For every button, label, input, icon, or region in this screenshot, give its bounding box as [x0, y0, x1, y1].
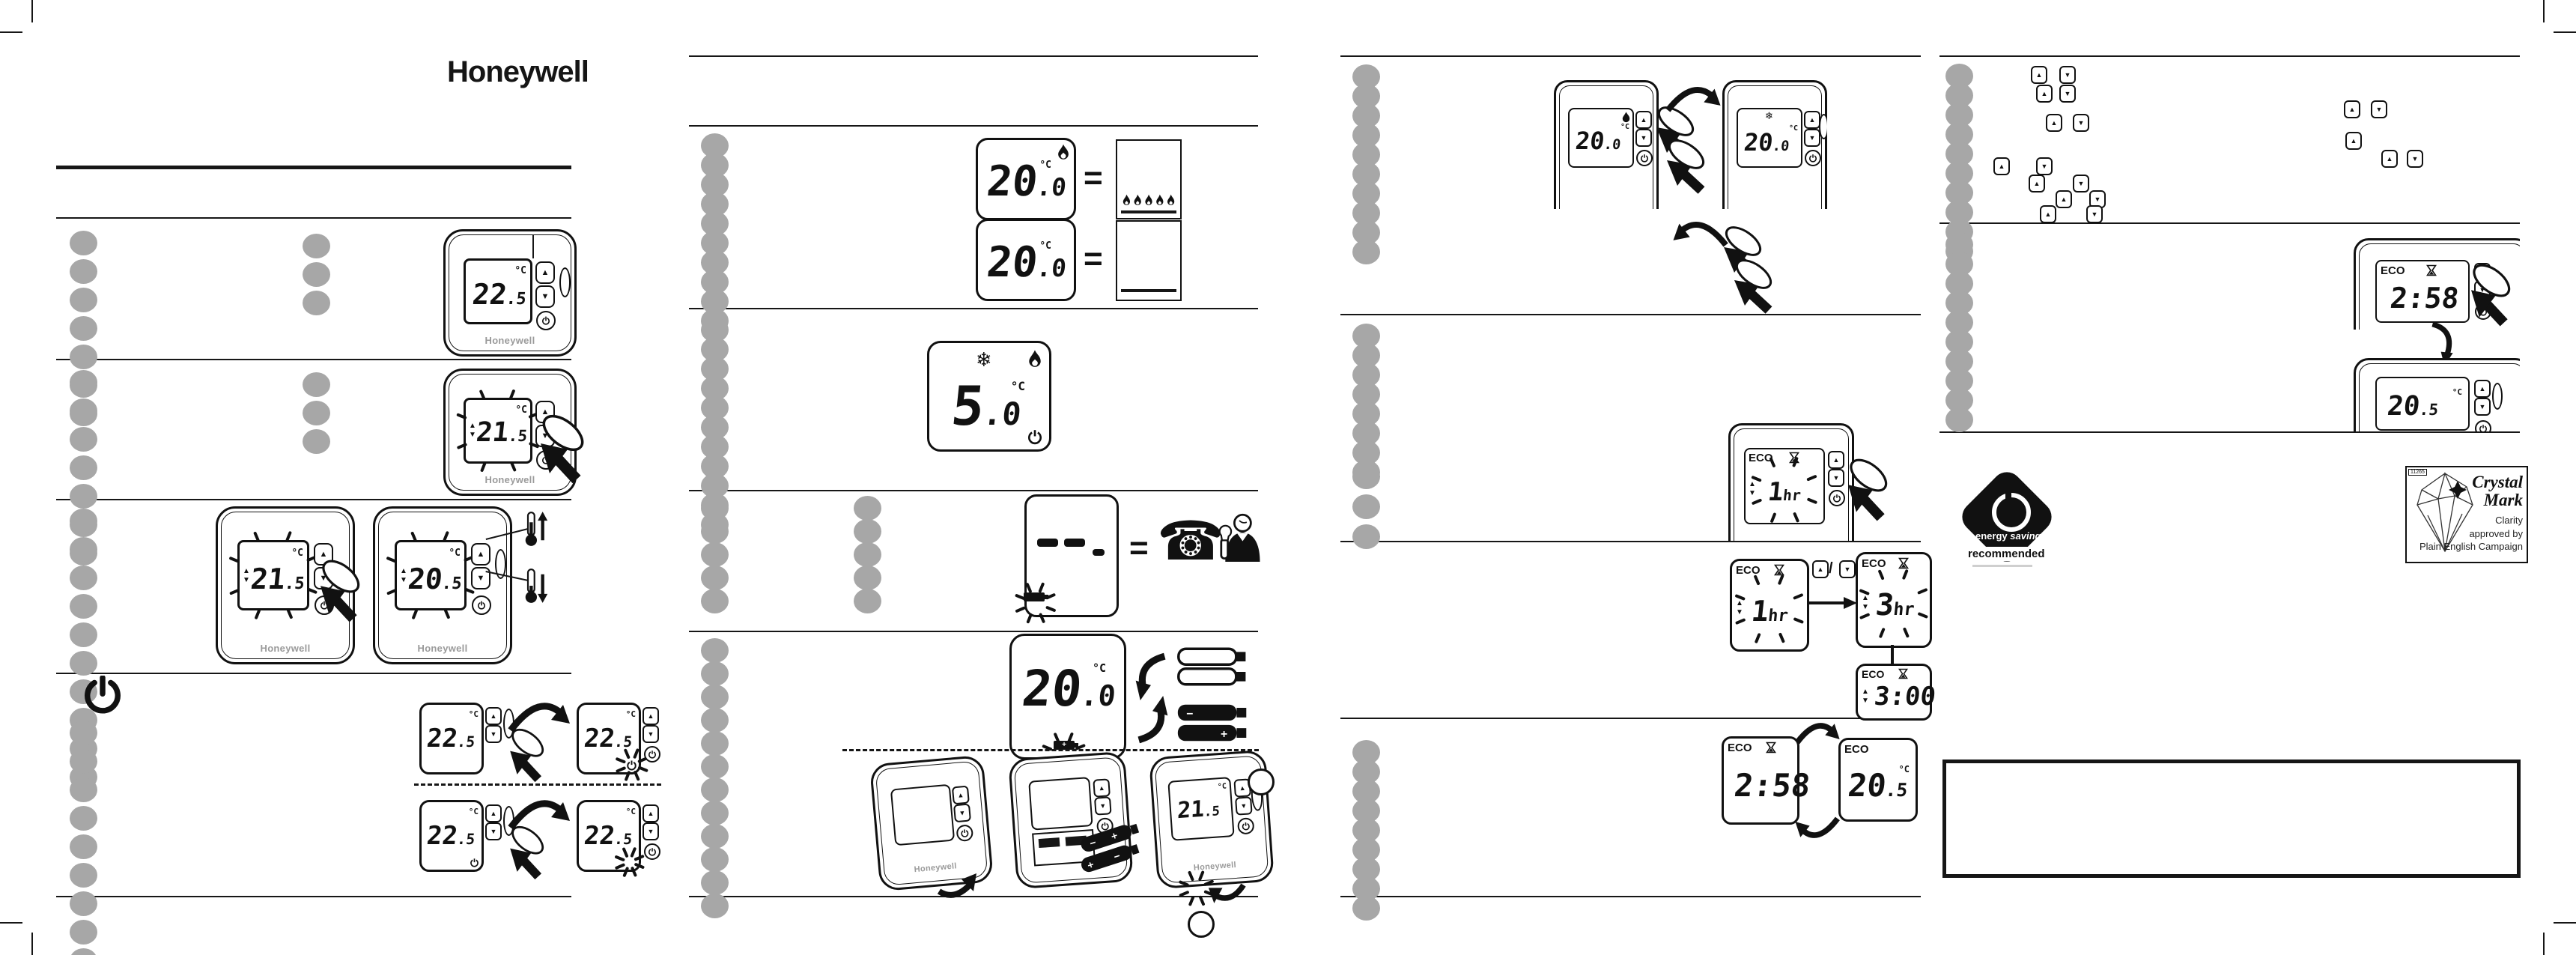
step-callout-circle: [1188, 911, 1215, 938]
up-button-icon: ▲: [1993, 157, 2010, 175]
redacted-text-line: [70, 721, 97, 745]
redacted-text-line: [70, 370, 97, 395]
lcd-on-flash: 22.5 °C: [577, 800, 641, 872]
down-button-icon: ▼: [953, 803, 971, 822]
toggle-arrow-top-icon: [1794, 718, 1841, 748]
down-button-icon: ▼: [2086, 205, 2103, 223]
redacted-text-line: [1352, 494, 1380, 519]
redacted-text-line: [1945, 407, 1973, 432]
finger-press-icon: [497, 721, 562, 785]
lcd-heating-on: 20.0 °C: [976, 138, 1076, 220]
redacted-text-line: [701, 847, 729, 872]
brand-logo: Honeywell: [447, 55, 589, 89]
down-button-icon: ▼: [2073, 114, 2089, 132]
up-button-icon: ▲: [471, 543, 490, 566]
swap-arrows-icon: [1132, 649, 1171, 748]
redacted-text-line: [70, 891, 97, 916]
up-button-icon: ▲: [2344, 100, 2360, 118]
redacted-text-line: [701, 589, 729, 613]
down-button-icon: ▼: [2474, 398, 2491, 416]
batteries-empty-icon: [1176, 646, 1251, 688]
redacted-text-line: [701, 566, 729, 590]
power-glyph: [626, 760, 637, 771]
redacted-text-line: [854, 542, 881, 567]
equals-sign: =: [1084, 162, 1103, 195]
up-button-icon: ▲: [2474, 380, 2491, 398]
redacted-text-line: [70, 259, 97, 284]
redacted-text-line: [303, 234, 330, 258]
redacted-text-line: [70, 948, 97, 955]
curved-arrow-icon: [1664, 81, 1724, 117]
redacted-paragraph: [854, 496, 881, 608]
up-button-icon: ▲: [2056, 190, 2072, 208]
down-button-icon: ▼: [1235, 796, 1253, 815]
thermometer-down-icon: [524, 568, 550, 604]
crystal-mark-logo: 11265 CrystalMark Clarity approved by Pl…: [2405, 466, 2528, 563]
flame-icon: [1622, 112, 1630, 123]
power-button-icon: [644, 843, 660, 860]
row-divider: [414, 783, 661, 786]
crop-mark: [2554, 922, 2576, 924]
power-button-icon: [472, 595, 491, 615]
up-button-icon: ▲: [2381, 150, 2398, 168]
redacted-text-line: [854, 566, 881, 590]
redacted-paragraph: [1352, 64, 1380, 255]
redacted-text-line: [701, 519, 729, 544]
redacted-text-line: [70, 920, 97, 945]
redacted-text-line: [701, 894, 729, 918]
up-button-icon: ▲: [643, 804, 659, 822]
lcd-standby-flash: 22.5 °C: [577, 703, 641, 774]
redacted-paragraph: [701, 638, 729, 913]
energy-saving-logo: energy saving recommended: [1956, 476, 2061, 577]
flame-icon: [1028, 349, 1042, 369]
up-button-icon: ▲: [1812, 560, 1829, 578]
redacted-text-line: [701, 777, 729, 802]
redacted-text-line: [701, 685, 729, 709]
redacted-text-line: [1352, 464, 1380, 489]
thermostat-front-illustration: 22.5 °C ▲ ▼ Honeywell: [443, 229, 577, 357]
batteries-inserting-icon: −+ +−: [1069, 816, 1152, 876]
redacted-text-line: [70, 484, 97, 509]
redacted-text-line: [303, 262, 330, 287]
flame-icon: [1057, 144, 1069, 160]
redacted-text-line: [701, 661, 729, 686]
up-button-icon: ▲: [2036, 85, 2053, 103]
engineer-icon: [1215, 512, 1264, 578]
finger-press-icon: [2456, 255, 2531, 330]
finger-press-icon: [1833, 449, 1908, 524]
equals-sign: =: [1084, 243, 1103, 276]
lcd-eco-temp: ECO 20.5 °C: [1838, 738, 1918, 822]
lcd-on-state: 22.5 °C: [419, 703, 484, 774]
up-button-icon: ▲: [2040, 205, 2056, 223]
redacted-text-line: [70, 594, 97, 619]
down-button-icon: ▼: [2371, 100, 2387, 118]
svg-text:+: +: [1221, 728, 1227, 741]
hourglass-icon: [1766, 742, 1776, 754]
redacted-text-line: [70, 231, 97, 255]
redacted-text-line: [70, 566, 97, 590]
crop-mark: [31, 0, 33, 22]
note-box: [1942, 760, 2521, 878]
redacted-text-line: [701, 824, 729, 849]
thermostat-eco-cancelled: 20.5 °C ▲ ▼: [2354, 358, 2520, 431]
celsius-unit: °C: [514, 265, 526, 276]
redacted-bullet: [1352, 464, 1380, 489]
redacted-bullet: [1352, 494, 1380, 519]
lcd-battery-fail: [1024, 494, 1119, 617]
redacted-text-line: [1352, 524, 1380, 549]
row-divider: [842, 749, 1259, 751]
redacted-text-line: [701, 708, 729, 733]
leaflet-page: Honeywell 22.5 °C ▲ ▼ Honeywell ▲▼ 21.5 …: [0, 0, 2576, 955]
redacted-text-line: [303, 372, 330, 397]
snowflake-icon: ❄: [976, 349, 992, 372]
close-arrow-icon: [1207, 876, 1249, 906]
lcd-eco-countdown: ECO 2:58: [1722, 736, 1799, 825]
redacted-text-line: [854, 496, 881, 521]
hourglass-icon: [1898, 557, 1909, 569]
up-button-icon: ▲: [1804, 111, 1820, 129]
power-icon: [82, 676, 123, 716]
redacted-text-line: [70, 806, 97, 831]
finger-press-icon: [306, 551, 380, 625]
power-button-icon: [644, 746, 660, 763]
crop-mark: [2543, 933, 2545, 955]
redacted-paragraph: [303, 372, 330, 454]
redacted-text-line: [701, 754, 729, 779]
thermometer-up-icon: [524, 511, 550, 547]
up-button-icon: ▲: [2029, 175, 2045, 192]
down-button-icon: ▼: [2036, 157, 2053, 175]
batteries-full-icon: −+: [1176, 701, 1251, 745]
open-arrow-icon: [935, 869, 979, 900]
two-finger-press-icon: [1700, 225, 1790, 315]
redacted-text-line: [70, 455, 97, 480]
lcd-standby-state: 22.5 °C: [419, 800, 484, 872]
redacted-paragraph: [70, 721, 97, 955]
crop-mark: [31, 933, 33, 955]
power-button-icon: [1237, 817, 1254, 834]
battery-flash-icon: [1024, 592, 1045, 601]
lcd-heating-off: 20.0 °C: [976, 219, 1076, 301]
redacted-text-line: [701, 731, 729, 756]
power-button-icon: [2475, 420, 2491, 431]
power-glyph: [1027, 428, 1043, 445]
power-glyph: [470, 858, 479, 867]
power-button-icon: [1805, 150, 1821, 166]
crop-mark: [0, 31, 22, 33]
redacted-text-line: [70, 345, 97, 369]
crop-mark: [2543, 0, 2545, 22]
redacted-text-line: [70, 651, 97, 676]
finger-press-icon: [497, 818, 562, 882]
redacted-text-line: [701, 638, 729, 663]
down-button-icon: ▼: [643, 725, 659, 743]
down-button-icon: ▼: [1839, 560, 1856, 578]
redacted-text-line: [70, 834, 97, 859]
side-grip: [559, 267, 571, 297]
redacted-paragraph: [1352, 740, 1380, 912]
crop-mark: [0, 922, 22, 924]
redacted-text-line: [70, 863, 97, 888]
down-button-icon: ▼: [2073, 175, 2089, 192]
redacted-text-line: [303, 429, 330, 454]
redacted-text-line: [701, 870, 729, 895]
redacted-text-line: [1352, 240, 1380, 264]
lcd-frost-mode: ❄ 5.0 °C: [927, 341, 1051, 452]
lcd-eco-set: ECO ▲▼ 3:00: [1856, 664, 1932, 721]
power-button-icon: [536, 311, 556, 330]
lcd-eco-3hr: ECO ▲▼ 3hr: [1856, 552, 1932, 648]
up-button-icon: ▲: [2345, 132, 2362, 150]
crop-mark: [2554, 31, 2576, 33]
redacted-text-line: [70, 509, 97, 533]
down-button-icon: ▼: [2407, 150, 2423, 168]
redacted-paragraph: [1945, 232, 1973, 423]
device-brand-label: Honeywell: [446, 335, 574, 346]
thermostat-frost-mode: ❄ 20.0 °C ▲ ▼: [1722, 80, 1827, 209]
flames-icon: [1121, 192, 1176, 209]
toggle-arrow-bottom-icon: [1794, 813, 1841, 843]
down-button-icon: ▼: [1804, 129, 1820, 147]
up-button-icon: ▲: [2031, 66, 2047, 84]
down-button-icon: ▼: [535, 285, 555, 308]
thermostat-new-setpoint-illustration: ▲▼ 20.5 °C ▲ ▼ Honeywell: [373, 506, 512, 664]
redacted-paragraph: [303, 234, 330, 315]
redacted-paragraph: [701, 133, 729, 324]
up-button-icon: ▲: [535, 261, 555, 284]
redacted-text-line: [1352, 896, 1380, 921]
redacted-text-line: [70, 622, 97, 647]
redacted-text-line: [70, 316, 97, 341]
up-button-icon: ▲: [952, 786, 970, 805]
side-grip: [1819, 114, 1827, 139]
redacted-text-line: [854, 519, 881, 544]
redacted-paragraph: [701, 496, 729, 608]
up-button-icon: ▲: [643, 707, 659, 725]
redacted-text-line: [70, 749, 97, 774]
redacted-paragraph: [1945, 64, 1973, 255]
step-callout-circle: [1248, 768, 1275, 795]
hourglass-icon: [1898, 668, 1908, 679]
down-button-icon: ▼: [2059, 66, 2076, 84]
redacted-text-line: [701, 542, 729, 567]
down-button-icon: ▼: [643, 822, 659, 840]
up-button-icon: ▲: [1093, 778, 1111, 797]
down-button-icon: ▼: [2059, 85, 2076, 103]
redacted-text-line: [701, 496, 729, 521]
redacted-text-line: [701, 801, 729, 825]
power-button-icon: [956, 824, 973, 842]
boiler-on-box: [1116, 139, 1182, 219]
redacted-text-line: [70, 288, 97, 312]
redacted-bullet: [1352, 524, 1380, 549]
redacted-text-line: [70, 398, 97, 423]
lcd-battery-low: 20.0 °C +: [1009, 634, 1126, 760]
redacted-paragraph: [1352, 324, 1380, 476]
finger-press-icon: [524, 404, 607, 487]
side-grip: [2492, 383, 2503, 410]
hourglass-icon: [2426, 264, 2437, 276]
redacted-text-line: [303, 291, 330, 315]
up-button-icon: ▲: [2046, 114, 2062, 132]
two-finger-press-icon: [1632, 105, 1722, 195]
redacted-text-line: [70, 777, 97, 802]
redacted-text-line: [303, 401, 330, 425]
arrow-right-icon: [1808, 596, 1857, 610]
snowflake-icon: ❄: [1765, 111, 1773, 122]
svg-text:−: −: [1186, 708, 1193, 721]
boiler-off-box: [1116, 220, 1182, 301]
equals-sign: =: [1129, 532, 1149, 565]
lcd-eco-1hr: ECO ▲▼ 1hr: [1730, 559, 1809, 652]
down-button-icon: ▼: [1094, 796, 1112, 815]
redacted-text-line: [70, 427, 97, 452]
redacted-text-line: [70, 537, 97, 562]
redacted-text-line: [854, 589, 881, 613]
